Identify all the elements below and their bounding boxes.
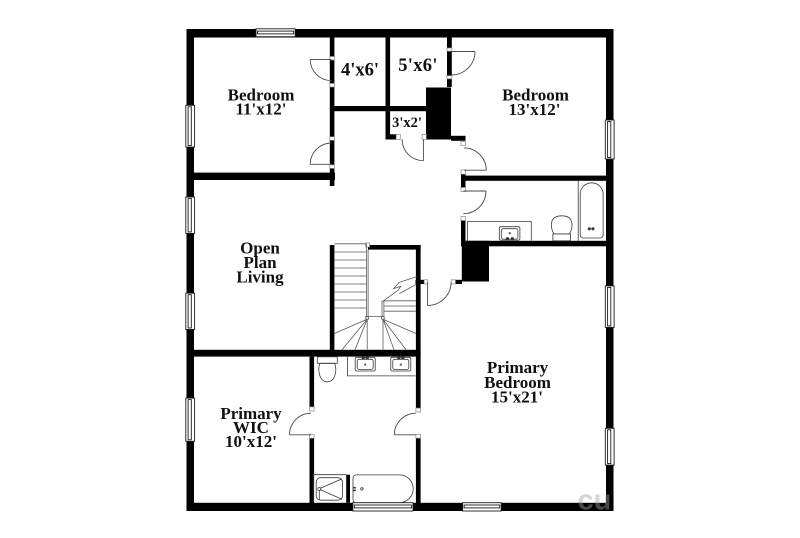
svg-text:Living: Living: [236, 267, 284, 286]
svg-text:3'x2': 3'x2': [392, 115, 422, 131]
svg-text:11'x12': 11'x12': [235, 100, 286, 119]
svg-text:13'x12': 13'x12': [509, 100, 561, 119]
svg-text:5'x6': 5'x6': [398, 56, 438, 76]
svg-text:4'x6': 4'x6': [341, 60, 379, 80]
svg-text:cu: cu: [578, 485, 612, 517]
svg-text:10'x12': 10'x12': [225, 432, 277, 451]
svg-text:15'x21': 15'x21': [491, 388, 543, 407]
